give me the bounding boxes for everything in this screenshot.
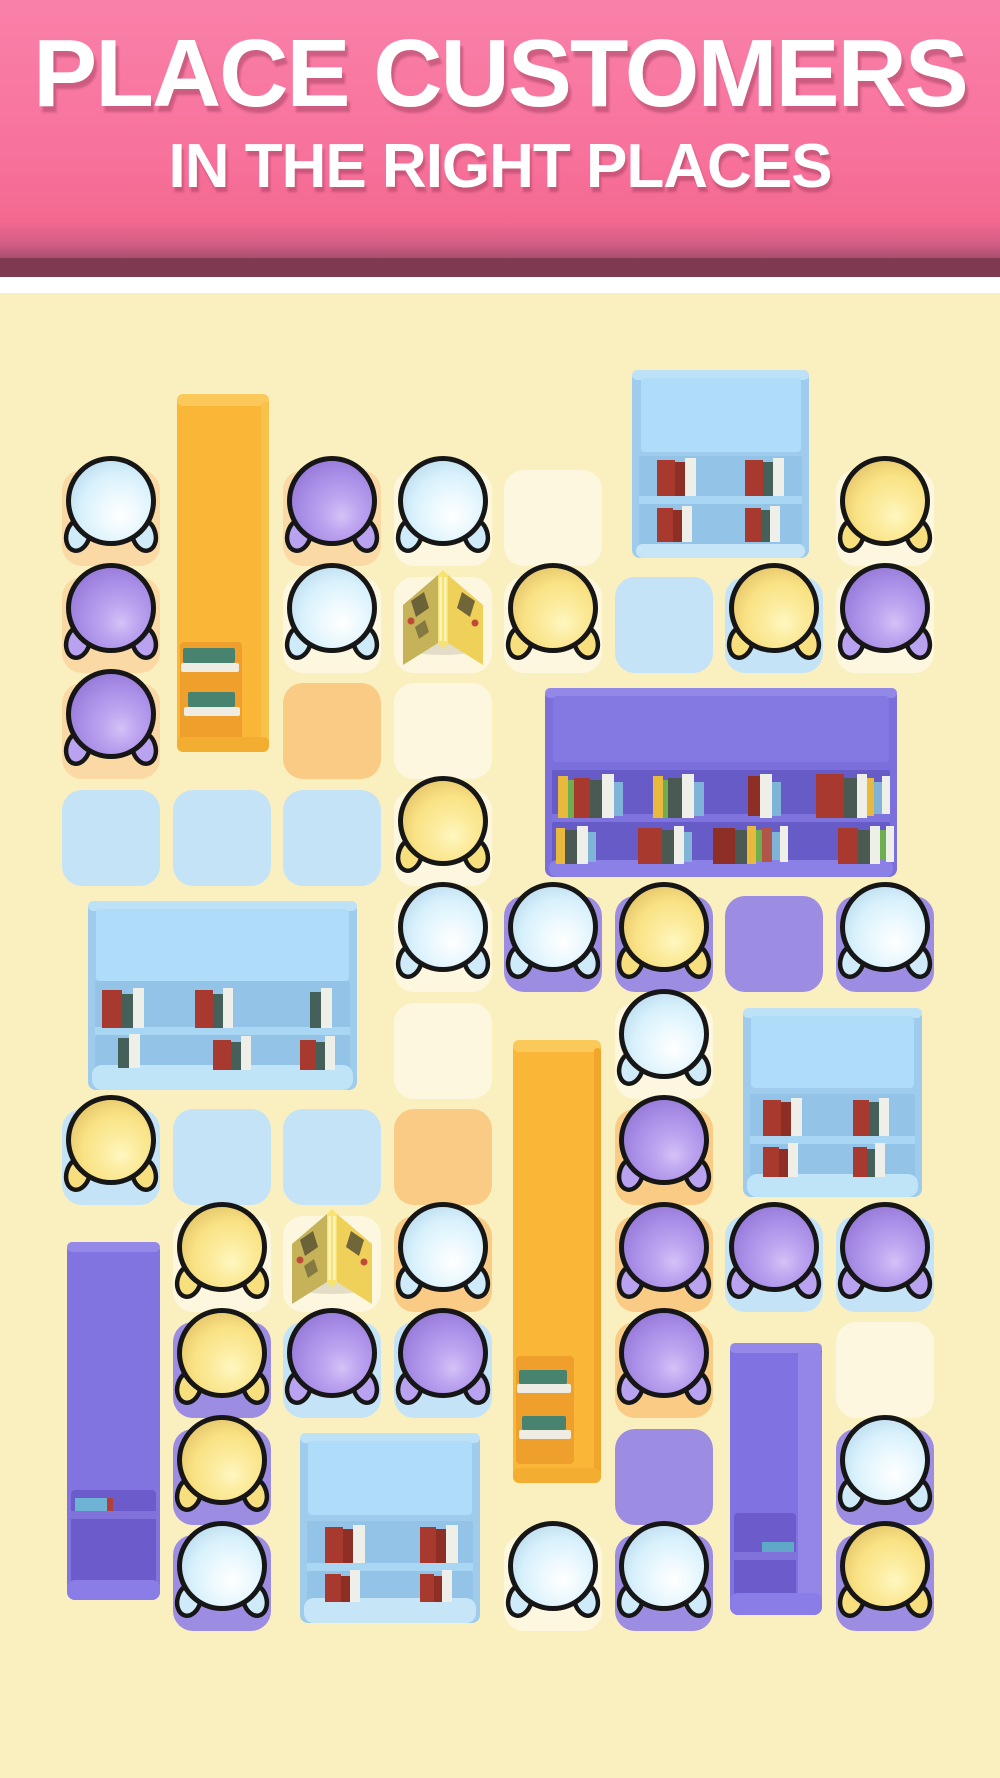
book-stand-sprite — [391, 559, 495, 663]
furniture-part — [556, 828, 565, 864]
furniture-part — [772, 782, 781, 816]
furniture-part — [641, 378, 801, 452]
customer-yellow[interactable] — [722, 561, 826, 665]
tile-r5c7[interactable] — [725, 896, 823, 992]
furniture-part — [682, 774, 694, 818]
screen: PLACE CUSTOMERS IN THE RIGHT PLACES — [0, 0, 1000, 1778]
tile-r2c6[interactable] — [615, 577, 713, 673]
furniture-part — [436, 1529, 446, 1563]
furniture-part — [857, 774, 867, 818]
furniture-part — [590, 780, 602, 818]
customer-blue[interactable] — [833, 880, 937, 984]
tile-r9c8[interactable] — [836, 1322, 934, 1418]
furniture-part — [875, 1143, 885, 1177]
customer-yellow[interactable] — [501, 561, 605, 665]
customer-sprite — [59, 561, 163, 665]
customer-purple[interactable] — [59, 561, 163, 665]
furniture-part — [300, 1040, 316, 1070]
furniture-part — [325, 1527, 343, 1563]
customer-blue[interactable] — [391, 1200, 495, 1304]
banner-strip — [0, 258, 1000, 277]
tile-r7c4[interactable] — [394, 1109, 492, 1205]
furniture-part — [853, 1147, 867, 1177]
furniture-part — [75, 1498, 107, 1511]
furniture-part — [674, 826, 684, 864]
furniture-part — [602, 774, 614, 818]
tile-r4c1[interactable] — [62, 790, 160, 886]
furniture-part — [874, 782, 882, 814]
furniture-part — [577, 826, 588, 864]
furniture-part — [102, 990, 122, 1028]
customer-sprite — [170, 1306, 274, 1410]
furniture-part — [798, 1351, 822, 1609]
furniture-part — [195, 990, 213, 1028]
furniture-part — [181, 663, 239, 672]
customer-sprite — [833, 561, 937, 665]
customer-sprite — [59, 1093, 163, 1197]
furniture-part — [129, 1034, 140, 1068]
customer-purple[interactable] — [612, 1093, 716, 1197]
furniture-part — [588, 832, 596, 862]
furniture-part — [553, 696, 889, 762]
customer-sprite — [280, 1306, 384, 1410]
furniture-part — [763, 1100, 781, 1136]
furniture-part — [223, 988, 233, 1028]
customer-purple[interactable] — [280, 1306, 384, 1410]
furniture-part — [325, 1574, 341, 1602]
furniture-part — [353, 1525, 365, 1563]
furniture-part — [513, 1040, 601, 1052]
customer-blue[interactable] — [612, 987, 716, 1091]
furniture-part — [96, 909, 349, 981]
tile-r3c3[interactable] — [283, 683, 381, 779]
customer-blue[interactable] — [391, 880, 495, 984]
tile-r4c3[interactable] — [283, 790, 381, 886]
customer-sprite — [833, 880, 937, 984]
furniture-part — [879, 1098, 889, 1136]
furniture-part — [886, 826, 894, 862]
tile-r7c3[interactable] — [283, 1109, 381, 1205]
customer-yellow[interactable] — [170, 1306, 274, 1410]
furniture-part — [763, 462, 773, 496]
furniture-part — [213, 1040, 231, 1070]
customer-sprite — [612, 880, 716, 984]
tile-r4c2[interactable] — [173, 790, 271, 886]
furniture-part — [184, 707, 240, 716]
furniture-part — [188, 692, 235, 707]
customer-purple[interactable] — [280, 454, 384, 558]
customer-sprite — [170, 1200, 274, 1304]
furniture-part — [653, 776, 663, 818]
customer-blue[interactable] — [280, 561, 384, 665]
customer-sprite — [612, 1519, 716, 1623]
furniture-part — [770, 506, 780, 542]
furniture-part — [735, 830, 747, 864]
furniture-part — [67, 1580, 160, 1600]
customer-purple[interactable] — [612, 1200, 716, 1304]
furniture-part — [763, 1147, 779, 1177]
customer-purple[interactable] — [612, 1306, 716, 1410]
customer-sprite — [833, 1413, 937, 1517]
furniture-part — [747, 1174, 918, 1197]
furniture-part — [853, 1100, 869, 1136]
furniture-part — [343, 1529, 353, 1563]
furniture-part — [869, 1102, 879, 1136]
furniture-part — [183, 648, 235, 663]
customer-sprite — [612, 1093, 716, 1197]
furniture-part — [668, 778, 682, 818]
furniture-part — [519, 1430, 571, 1439]
furniture-part — [565, 830, 577, 864]
furniture-part — [788, 1143, 798, 1177]
customer-sprite — [391, 774, 495, 878]
furniture-part — [734, 1552, 796, 1560]
furniture-part — [713, 828, 735, 864]
customer-sprite — [612, 1306, 716, 1410]
furniture-part — [519, 1370, 567, 1384]
furniture-part — [750, 1136, 915, 1144]
furniture-part — [772, 832, 780, 860]
customer-sprite — [280, 454, 384, 558]
customer-purple[interactable] — [833, 561, 937, 665]
customer-sprite — [170, 1413, 274, 1517]
furniture-part — [310, 992, 321, 1028]
furniture-part — [122, 994, 133, 1028]
customer-sprite — [391, 454, 495, 558]
furniture-part — [517, 1384, 571, 1393]
customer-sprite — [59, 454, 163, 558]
furniture-part — [762, 828, 772, 862]
furniture-part — [614, 782, 623, 816]
furniture-part — [241, 1036, 251, 1070]
furniture-part — [816, 774, 844, 818]
customer-sprite — [501, 561, 605, 665]
customer-purple[interactable] — [833, 1200, 937, 1304]
furniture-part — [341, 1576, 350, 1602]
customer-purple[interactable] — [59, 667, 163, 771]
furniture-part — [791, 1098, 802, 1136]
customer-yellow[interactable] — [612, 880, 716, 984]
furniture-part — [231, 1042, 241, 1070]
customer-sprite — [391, 1200, 495, 1304]
tile-r10c6[interactable] — [615, 1429, 713, 1525]
furniture-part — [434, 1576, 442, 1602]
customer-yellow[interactable] — [833, 1519, 937, 1623]
furniture-part — [321, 988, 332, 1028]
furniture-part — [442, 1570, 452, 1602]
furniture-part — [177, 737, 269, 752]
furniture-part — [420, 1574, 434, 1602]
furniture-part — [747, 826, 756, 864]
furniture-part — [446, 1525, 458, 1563]
furniture-part — [684, 832, 692, 862]
furniture-part — [71, 1511, 156, 1519]
customer-blue[interactable] — [833, 1413, 937, 1517]
furniture-part — [574, 778, 590, 818]
furniture-part — [639, 496, 802, 504]
furniture-part — [308, 1441, 472, 1515]
furniture-part — [745, 508, 761, 542]
customer-sprite — [391, 1306, 495, 1410]
customer-yellow[interactable] — [833, 454, 937, 558]
customer-yellow[interactable] — [170, 1200, 274, 1304]
banner-divider — [0, 277, 1000, 293]
furniture-part — [781, 1102, 791, 1136]
furniture-part — [657, 508, 673, 542]
tile-r3c4[interactable] — [394, 683, 492, 779]
customer-blue[interactable] — [501, 1519, 605, 1623]
furniture-part — [673, 510, 682, 542]
customer-sprite — [170, 1519, 274, 1623]
furniture-part — [636, 544, 805, 558]
customer-yellow[interactable] — [391, 774, 495, 878]
customer-sprite — [833, 1519, 937, 1623]
furniture-part — [870, 826, 880, 864]
customer-blue[interactable] — [391, 454, 495, 558]
furniture-part — [844, 778, 857, 818]
furniture-part — [762, 1542, 794, 1552]
furniture-part — [177, 394, 269, 406]
furniture-part — [638, 828, 662, 864]
furniture-part — [657, 460, 675, 496]
title-line-2: IN THE RIGHT PLACES — [0, 122, 1000, 198]
tile-r1c5[interactable] — [504, 470, 602, 566]
furniture-part — [316, 1042, 325, 1070]
furniture-part — [858, 830, 870, 864]
furniture-part — [730, 1593, 822, 1615]
furniture-part — [420, 1527, 436, 1563]
banner: PLACE CUSTOMERS IN THE RIGHT PLACES — [0, 0, 1000, 258]
customer-yellow[interactable] — [170, 1413, 274, 1517]
customer-purple[interactable] — [391, 1306, 495, 1410]
title-line-1: PLACE CUSTOMERS — [0, 0, 1000, 122]
customer-blue[interactable] — [59, 454, 163, 558]
furniture-part — [760, 774, 772, 818]
furniture-part — [882, 776, 890, 814]
customer-purple[interactable] — [722, 1200, 826, 1304]
book-stand — [280, 1198, 384, 1302]
customer-blue[interactable] — [501, 880, 605, 984]
customer-sprite — [280, 561, 384, 665]
customer-yellow[interactable] — [59, 1093, 163, 1197]
customer-sprite — [722, 1200, 826, 1304]
customer-sprite — [833, 1200, 937, 1304]
customer-sprite — [612, 1200, 716, 1304]
furniture-part — [780, 826, 788, 862]
furniture-part — [133, 988, 144, 1028]
book-stand — [391, 559, 495, 663]
customer-sprite — [833, 454, 937, 558]
customer-sprite — [722, 561, 826, 665]
tile-r7c2[interactable] — [173, 1109, 271, 1205]
furniture-part — [107, 1498, 113, 1511]
customer-sprite — [391, 880, 495, 984]
furniture-part — [558, 776, 568, 818]
furniture-part — [118, 1038, 129, 1068]
furniture-part — [350, 1570, 360, 1602]
furniture-part — [745, 460, 763, 496]
furniture-part — [522, 1416, 566, 1430]
furniture-part — [325, 1036, 335, 1070]
furniture-part — [685, 458, 696, 496]
tile-r6c4[interactable] — [394, 1003, 492, 1099]
furniture-part — [748, 776, 760, 816]
customer-blue[interactable] — [170, 1519, 274, 1623]
furniture-part — [67, 1242, 160, 1252]
furniture-part — [867, 778, 874, 816]
furniture-part — [779, 1149, 788, 1177]
furniture-part — [694, 782, 704, 816]
furniture-part — [213, 994, 223, 1028]
furniture-part — [261, 402, 269, 746]
customer-sprite — [59, 667, 163, 771]
furniture-part — [761, 510, 770, 542]
furniture-part — [662, 830, 674, 864]
customer-blue[interactable] — [612, 1519, 716, 1623]
customer-sprite — [501, 880, 605, 984]
furniture-part — [751, 1016, 914, 1088]
book-stand-sprite — [280, 1198, 384, 1302]
furniture-part — [867, 1149, 875, 1177]
customer-sprite — [612, 987, 716, 1091]
furniture-part — [513, 1468, 601, 1483]
furniture-part — [682, 506, 692, 542]
furniture-part — [773, 458, 784, 496]
furniture-part — [838, 828, 858, 864]
customer-sprite — [501, 1519, 605, 1623]
furniture-part — [675, 462, 685, 496]
furniture-part — [594, 1048, 601, 1476]
